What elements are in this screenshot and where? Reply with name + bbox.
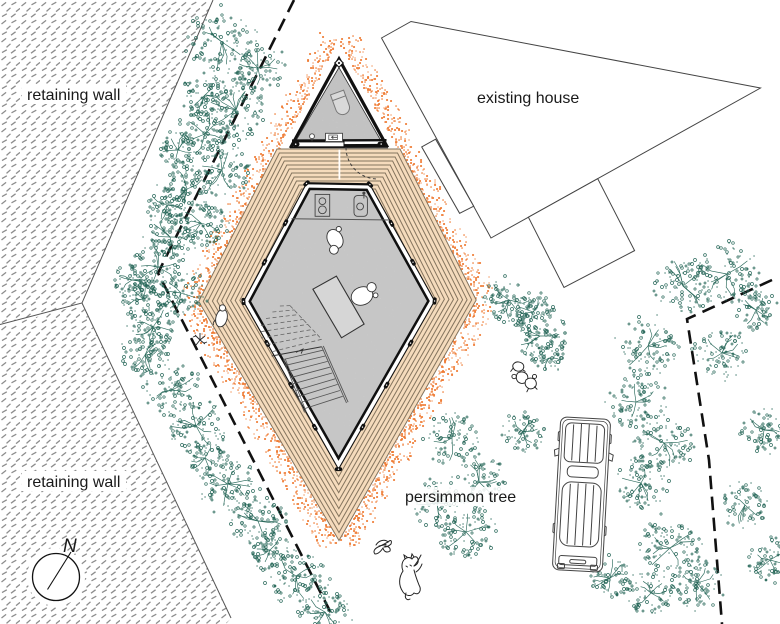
svg-text:N: N	[63, 536, 77, 557]
svg-text:retaining wall: retaining wall	[27, 87, 120, 104]
svg-text:existing house: existing house	[477, 90, 579, 107]
svg-text:persimmon tree: persimmon tree	[405, 489, 516, 506]
svg-text:retaining wall: retaining wall	[27, 474, 120, 491]
